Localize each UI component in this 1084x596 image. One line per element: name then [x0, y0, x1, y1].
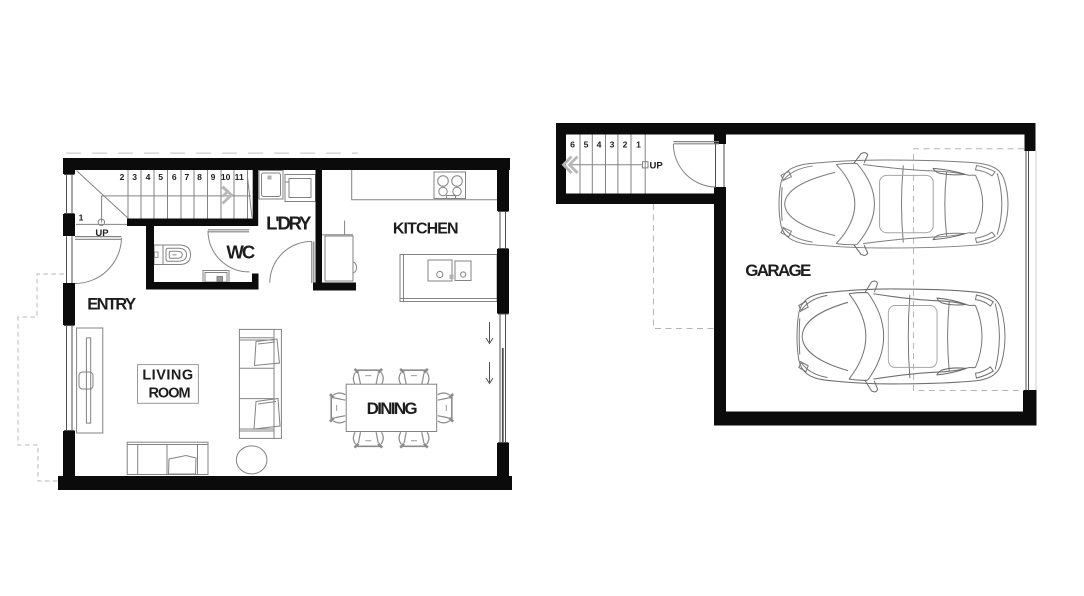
svg-text:10: 10	[221, 172, 231, 182]
svg-text:5: 5	[158, 172, 163, 182]
svg-text:KITCHEN: KITCHEN	[393, 221, 458, 238]
svg-text:2: 2	[623, 140, 628, 150]
svg-text:11: 11	[235, 172, 244, 182]
svg-text:ROOM: ROOM	[148, 385, 190, 401]
svg-text:4: 4	[597, 140, 602, 150]
svg-text:1: 1	[79, 213, 84, 223]
svg-text:2: 2	[120, 172, 125, 182]
svg-text:7: 7	[185, 172, 190, 182]
svg-text:5: 5	[584, 140, 589, 150]
svg-text:6: 6	[570, 140, 575, 150]
svg-text:LIVING: LIVING	[142, 368, 193, 384]
svg-text:UP: UP	[95, 228, 109, 239]
svg-text:1: 1	[636, 140, 641, 150]
svg-text:4: 4	[146, 172, 151, 182]
svg-text:6: 6	[172, 172, 177, 182]
svg-text:8: 8	[197, 172, 202, 182]
svg-text:3: 3	[132, 172, 137, 182]
svg-text:UP: UP	[650, 160, 664, 171]
svg-text:L'DRY: L'DRY	[266, 213, 312, 234]
svg-text:ENTRY: ENTRY	[87, 296, 136, 314]
svg-text:WC: WC	[226, 241, 254, 262]
svg-text:9: 9	[211, 172, 216, 182]
svg-text:GARAGE: GARAGE	[745, 261, 811, 280]
svg-text:DINING: DINING	[367, 399, 418, 418]
svg-text:3: 3	[610, 140, 615, 150]
